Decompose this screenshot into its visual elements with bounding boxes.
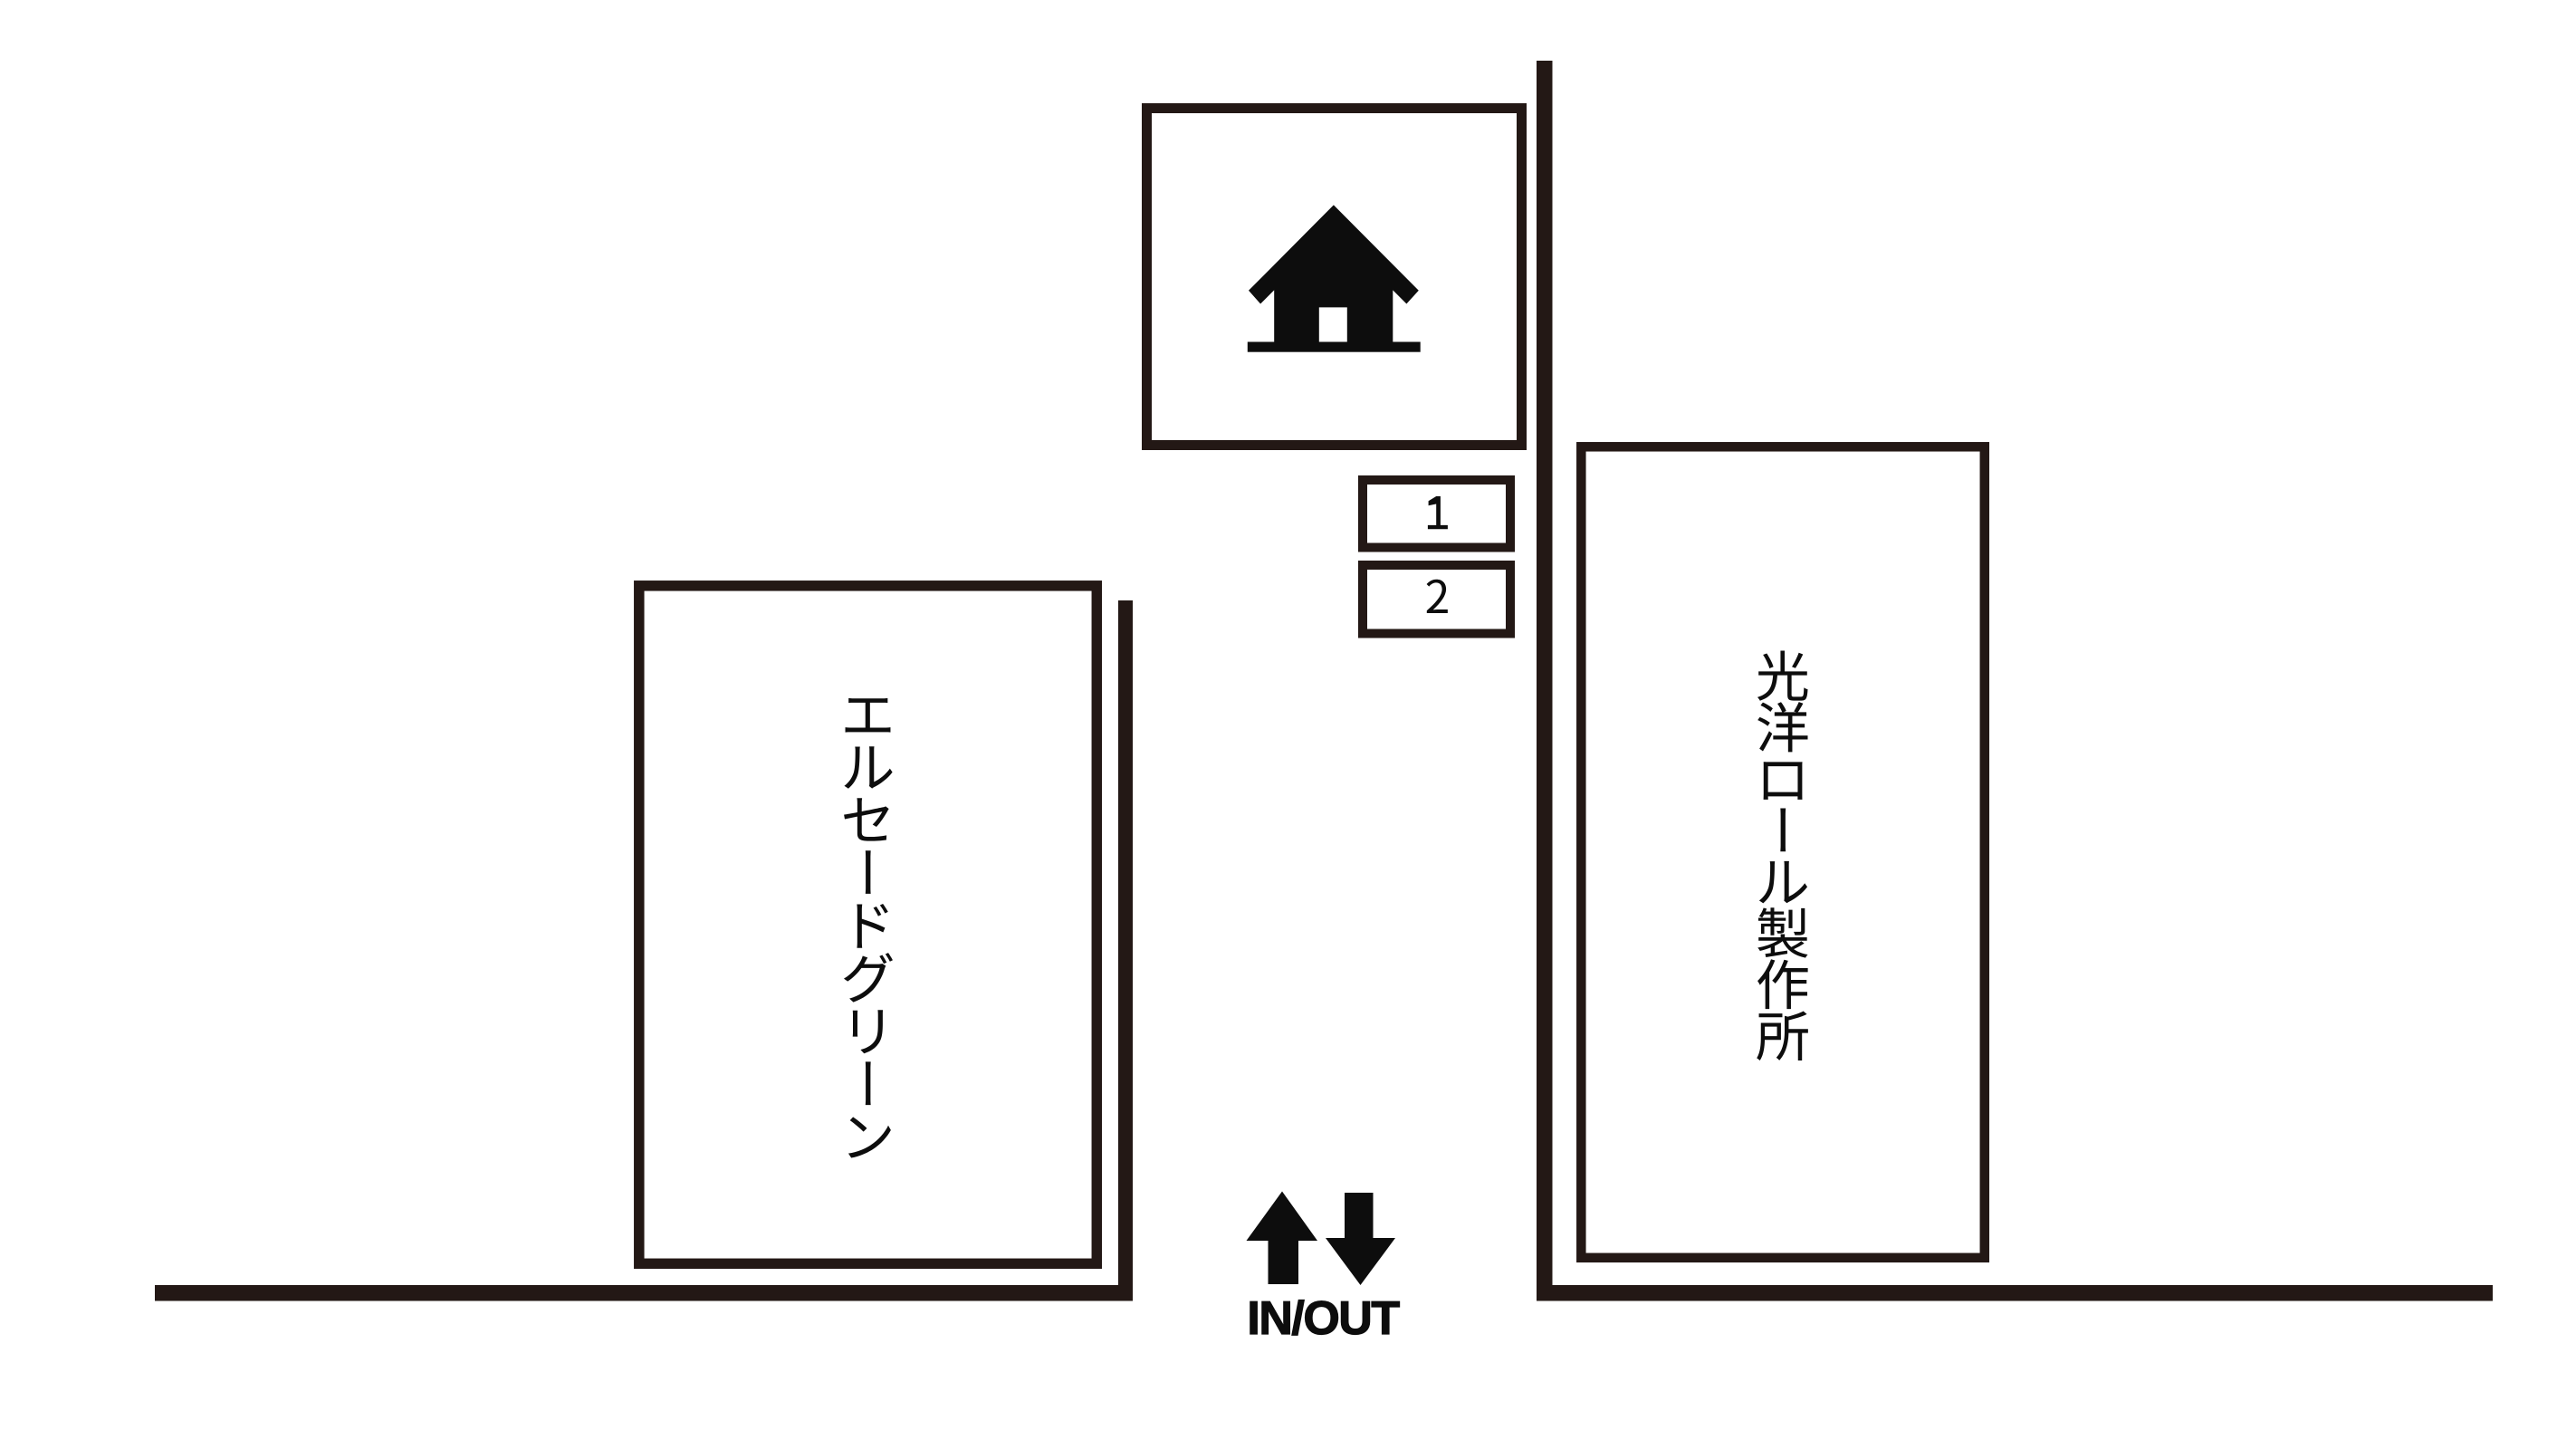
svg-text:IN/OUT: IN/OUT	[1247, 1292, 1400, 1345]
